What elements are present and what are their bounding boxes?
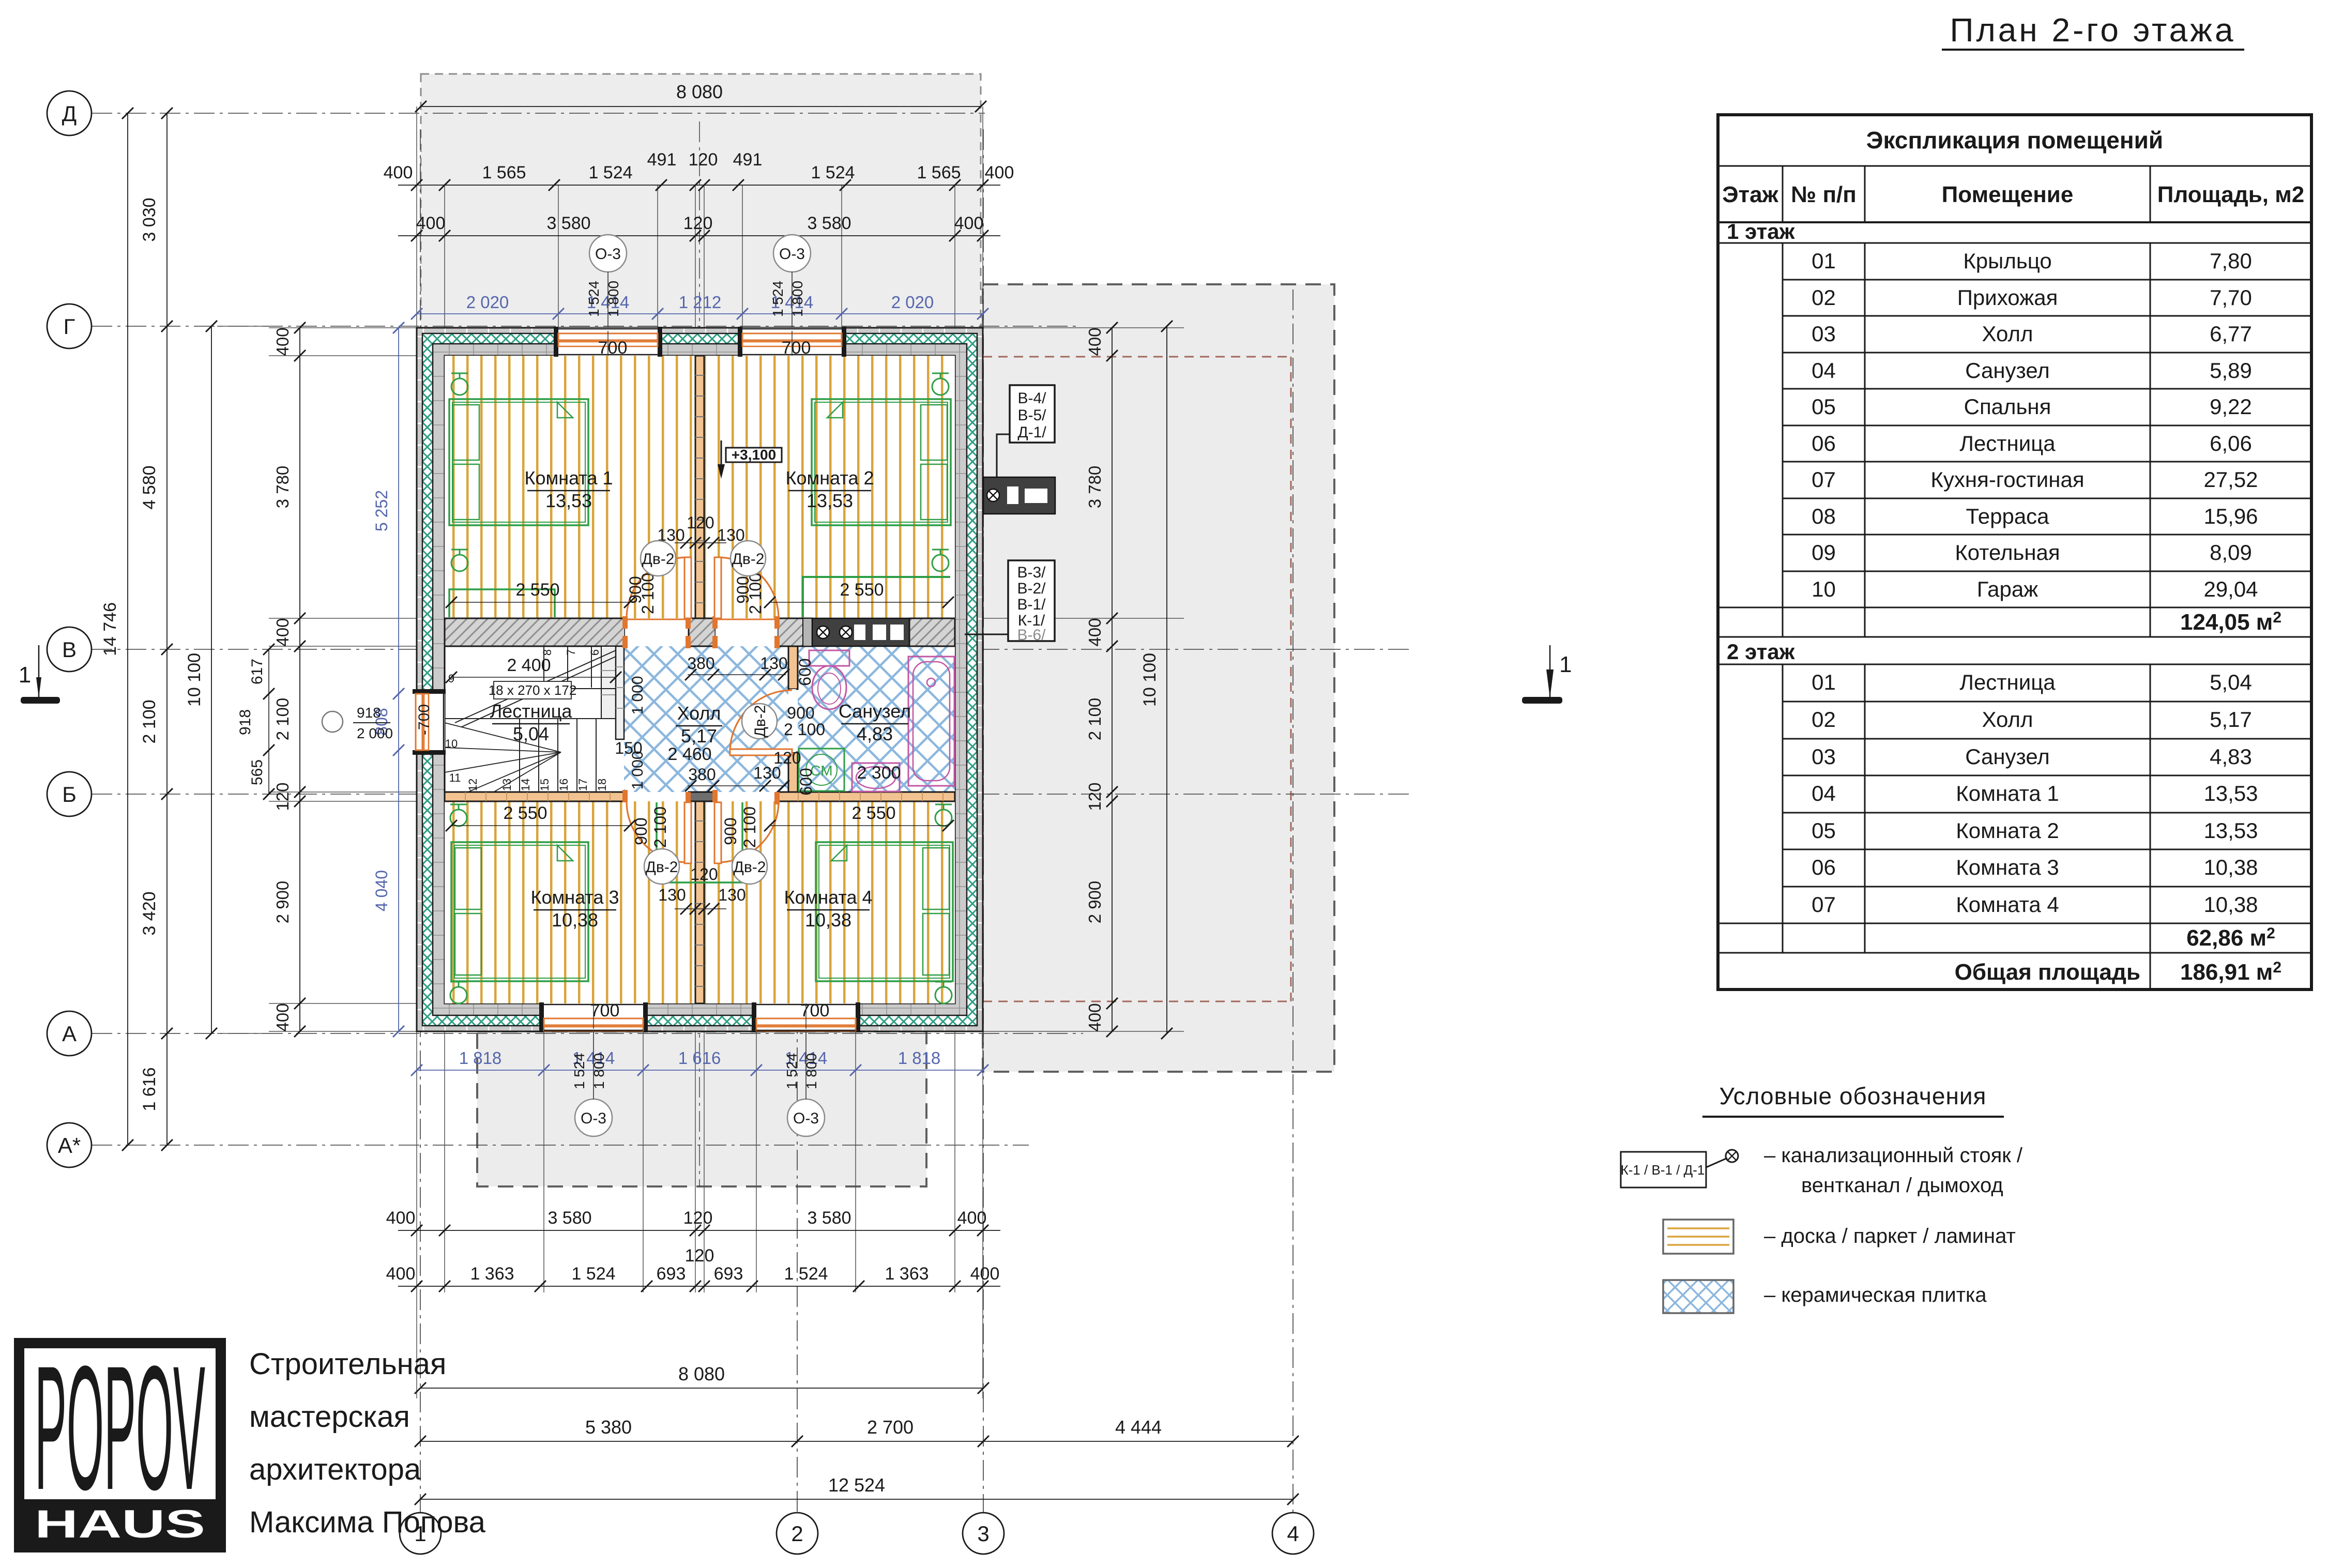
svg-text:1 000: 1 000	[629, 676, 646, 714]
svg-text:05: 05	[1812, 818, 1836, 843]
svg-text:4 580: 4 580	[140, 465, 159, 509]
svg-text:10,38: 10,38	[552, 909, 598, 931]
svg-text:400: 400	[273, 618, 292, 646]
svg-text:400: 400	[970, 1264, 1000, 1284]
svg-text:Д-1/: Д-1/	[1017, 424, 1046, 441]
svg-text:Прихожая: Прихожая	[1957, 285, 2058, 310]
svg-text:5,17: 5,17	[681, 725, 717, 747]
svg-text:4 444: 4 444	[1115, 1417, 1162, 1438]
svg-text:Санузел: Санузел	[1965, 744, 2050, 769]
svg-text:1 363: 1 363	[470, 1264, 514, 1284]
svg-text:120: 120	[683, 1208, 713, 1228]
svg-text:700: 700	[782, 338, 811, 358]
svg-text:12: 12	[466, 779, 479, 791]
svg-text:1 800: 1 800	[591, 1053, 607, 1089]
svg-text:15,96: 15,96	[2203, 504, 2258, 528]
svg-text:400: 400	[416, 214, 446, 233]
svg-text:03: 03	[1812, 322, 1836, 346]
svg-text:К-1 / В-1 / Д-1: К-1 / В-1 / Д-1	[1621, 1162, 1705, 1178]
svg-text:1 524: 1 524	[784, 1053, 800, 1089]
svg-text:18 x 270 x 172: 18 x 270 x 172	[489, 682, 577, 698]
svg-text:400: 400	[957, 1208, 987, 1228]
svg-text:А: А	[62, 1022, 77, 1046]
svg-text:2 900: 2 900	[1085, 881, 1104, 924]
svg-text:6,77: 6,77	[2210, 322, 2252, 346]
svg-text:3 580: 3 580	[807, 1208, 851, 1228]
svg-text:7: 7	[565, 649, 577, 656]
svg-text:10 100: 10 100	[1140, 653, 1160, 707]
svg-text:В-6/: В-6/	[1017, 627, 1046, 644]
svg-text:2 100: 2 100	[651, 806, 670, 848]
svg-text:Комната 4: Комната 4	[784, 887, 873, 908]
svg-text:07: 07	[1812, 467, 1836, 492]
svg-text:Комната 1: Комната 1	[1956, 781, 2059, 805]
svg-text:1 этаж: 1 этаж	[1727, 219, 1796, 243]
svg-text:400: 400	[384, 163, 413, 182]
svg-text:14 746: 14 746	[100, 602, 120, 656]
svg-text:13: 13	[500, 779, 513, 791]
svg-text:Крыльцо: Крыльцо	[1963, 249, 2051, 273]
svg-text:О-3: О-3	[793, 1110, 819, 1127]
svg-text:130: 130	[658, 886, 686, 904]
svg-text:Холл: Холл	[1982, 707, 2033, 732]
svg-text:617: 617	[249, 659, 266, 684]
svg-text:565: 565	[249, 759, 266, 785]
svg-text:01: 01	[1812, 249, 1836, 273]
svg-text:400: 400	[1085, 618, 1104, 646]
svg-text:02: 02	[1812, 707, 1836, 732]
svg-text:1 565: 1 565	[917, 163, 961, 182]
svg-text:380: 380	[687, 654, 714, 673]
svg-text:Г: Г	[64, 314, 75, 339]
svg-text:Лестница: Лестница	[1959, 431, 2056, 455]
svg-text:2 700: 2 700	[867, 1417, 914, 1438]
svg-text:Терраса: Терраса	[1966, 504, 2049, 528]
svg-text:Общая площадь: Общая площадь	[1955, 960, 2140, 985]
svg-text:3 420: 3 420	[140, 891, 159, 935]
svg-text:Экспликация помещений: Экспликация помещений	[1866, 127, 2163, 154]
svg-text:– керамическая плитка: – керамическая плитка	[1764, 1284, 1987, 1306]
svg-text:2 550: 2 550	[851, 803, 895, 823]
svg-text:12 524: 12 524	[828, 1474, 885, 1496]
svg-text:Площадь, м2: Площадь, м2	[2157, 182, 2304, 207]
svg-text:3 780: 3 780	[1085, 466, 1104, 509]
svg-text:02: 02	[1812, 285, 1836, 310]
svg-text:1 800: 1 800	[789, 281, 805, 317]
svg-text:16: 16	[557, 779, 570, 791]
svg-text:HAUS: HAUS	[35, 1502, 205, 1546]
svg-text:1 524: 1 524	[586, 281, 602, 317]
svg-text:2 900: 2 900	[273, 881, 292, 924]
svg-text:8: 8	[541, 649, 554, 656]
svg-text:120: 120	[687, 513, 714, 532]
svg-text:400: 400	[273, 1003, 292, 1031]
svg-text:120: 120	[689, 150, 718, 170]
svg-text:1 524: 1 524	[811, 163, 855, 182]
svg-text:– канализационный стояк /: – канализационный стояк /	[1764, 1144, 2023, 1167]
svg-text:4,83: 4,83	[2210, 744, 2252, 769]
svg-text:Строительная: Строительная	[249, 1347, 446, 1381]
svg-text:+3,100: +3,100	[732, 447, 776, 463]
svg-text:05: 05	[1812, 394, 1836, 419]
svg-text:120: 120	[690, 865, 718, 884]
svg-text:62,86 м2: 62,86 м2	[2186, 925, 2275, 951]
svg-text:архитектора: архитектора	[249, 1453, 421, 1486]
svg-text:1 524: 1 524	[571, 1053, 587, 1089]
svg-text:2 550: 2 550	[503, 803, 547, 823]
svg-text:13,53: 13,53	[807, 490, 853, 511]
svg-text:2 100: 2 100	[638, 573, 657, 614]
svg-text:Лестница: Лестница	[490, 701, 573, 722]
svg-text:В-2/: В-2/	[1017, 580, 1046, 597]
svg-text:5,17: 5,17	[2210, 707, 2252, 732]
svg-text:10 100: 10 100	[185, 653, 204, 707]
svg-text:5,89: 5,89	[2210, 358, 2252, 383]
svg-text:6: 6	[588, 649, 601, 656]
svg-text:1 800: 1 800	[803, 1053, 819, 1089]
svg-text:1 565: 1 565	[482, 163, 526, 182]
svg-text:900: 900	[632, 817, 650, 845]
svg-text:Лестница: Лестница	[1959, 670, 2056, 694]
svg-text:06: 06	[1812, 431, 1836, 455]
svg-text:491: 491	[647, 150, 677, 170]
svg-text:2 400: 2 400	[507, 656, 551, 675]
svg-text:10: 10	[1812, 577, 1836, 601]
svg-text:3 030: 3 030	[140, 197, 159, 241]
svg-text:2 020: 2 020	[891, 293, 934, 312]
svg-text:Максима Попова: Максима Попова	[249, 1505, 486, 1539]
svg-text:2: 2	[791, 1521, 803, 1546]
svg-text:POPOV: POPOV	[35, 1329, 205, 1526]
svg-text:400: 400	[386, 1208, 416, 1228]
svg-text:15: 15	[538, 779, 551, 791]
svg-text:О-3: О-3	[581, 1110, 606, 1127]
svg-text:400: 400	[1085, 1003, 1104, 1031]
svg-text:Кухня-гостиная: Кухня-гостиная	[1930, 467, 2084, 492]
svg-text:7,70: 7,70	[2210, 285, 2252, 310]
svg-text:700: 700	[590, 1001, 620, 1021]
svg-text:13,53: 13,53	[2203, 781, 2258, 805]
svg-text:В-3/: В-3/	[1017, 564, 1046, 581]
svg-text:Комната 2: Комната 2	[1956, 818, 2059, 843]
svg-text:400: 400	[1085, 327, 1104, 356]
svg-text:О-3: О-3	[779, 246, 805, 263]
svg-text:03: 03	[1812, 744, 1836, 769]
svg-text:693: 693	[714, 1264, 743, 1284]
svg-text:11: 11	[449, 771, 461, 784]
svg-text:Дв-2: Дв-2	[752, 705, 769, 738]
svg-text:2 100: 2 100	[746, 573, 765, 614]
svg-text:1 524: 1 524	[571, 1264, 615, 1284]
svg-text:1 363: 1 363	[885, 1264, 929, 1284]
svg-text:2 100: 2 100	[740, 806, 759, 848]
svg-text:Д: Д	[62, 101, 77, 126]
svg-text:-700: -700	[416, 704, 433, 735]
svg-text:14: 14	[519, 779, 532, 791]
svg-text:900: 900	[721, 817, 740, 845]
svg-text:О-3: О-3	[595, 246, 621, 263]
svg-text:8,09: 8,09	[2210, 540, 2252, 565]
svg-text:1 212: 1 212	[679, 293, 722, 312]
svg-text:5,04: 5,04	[2210, 670, 2252, 694]
svg-text:10,38: 10,38	[805, 909, 851, 931]
svg-text:09: 09	[1812, 540, 1836, 565]
svg-text:3 780: 3 780	[273, 466, 292, 509]
svg-text:13,53: 13,53	[2203, 818, 2258, 843]
svg-text:10,38: 10,38	[2203, 892, 2258, 917]
svg-text:Котельная: Котельная	[1955, 540, 2060, 565]
svg-text:491: 491	[733, 150, 763, 170]
svg-text:27,52: 27,52	[2203, 467, 2258, 492]
svg-text:1 524: 1 524	[784, 1264, 828, 1284]
svg-text:06: 06	[1812, 855, 1836, 879]
svg-text:2 550: 2 550	[515, 580, 559, 600]
svg-text:3 580: 3 580	[807, 214, 851, 233]
svg-text:1 616: 1 616	[140, 1067, 159, 1111]
svg-text:– доска / паркет / ламинат: – доска / паркет / ламинат	[1764, 1225, 2016, 1247]
svg-text:600: 600	[797, 768, 815, 795]
svg-text:1 524: 1 524	[588, 163, 632, 182]
svg-text:120: 120	[685, 1246, 714, 1266]
svg-text:130: 130	[760, 654, 787, 673]
svg-text:Холл: Холл	[677, 703, 721, 724]
svg-text:В: В	[62, 637, 77, 662]
svg-text:120: 120	[773, 749, 801, 767]
svg-text:1: 1	[1559, 652, 1572, 677]
svg-text:918: 918	[237, 709, 254, 735]
svg-text:400: 400	[386, 1264, 416, 1284]
svg-text:5 252: 5 252	[372, 490, 391, 531]
svg-text:Холл: Холл	[1982, 322, 2033, 346]
svg-text:Спальня: Спальня	[1964, 394, 2051, 419]
svg-text:04: 04	[1812, 781, 1836, 805]
svg-text:В-4/: В-4/	[1017, 390, 1046, 407]
svg-text:380: 380	[688, 765, 716, 784]
svg-text:130: 130	[717, 526, 744, 544]
svg-text:01: 01	[1812, 670, 1836, 694]
svg-text:400: 400	[954, 214, 984, 233]
svg-text:1 616: 1 616	[678, 1048, 721, 1068]
svg-text:400: 400	[273, 327, 292, 356]
svg-text:07: 07	[1812, 892, 1836, 917]
svg-text:600: 600	[796, 658, 814, 686]
svg-text:1: 1	[19, 662, 31, 688]
svg-text:13,53: 13,53	[545, 490, 592, 511]
svg-text:3: 3	[977, 1521, 989, 1546]
svg-text:700: 700	[800, 1001, 830, 1021]
svg-text:4 040: 4 040	[372, 870, 391, 911]
svg-text:120: 120	[1085, 782, 1104, 811]
svg-text:Комната 4: Комната 4	[1956, 892, 2059, 917]
svg-text:1 818: 1 818	[459, 1048, 502, 1068]
svg-text:8 080: 8 080	[676, 81, 723, 102]
svg-text:120: 120	[683, 214, 713, 233]
svg-text:Условные обозначения: Условные обозначения	[1720, 1083, 1987, 1109]
svg-text:17: 17	[576, 779, 589, 791]
svg-text:План 2-го этажа: План 2-го этажа	[1950, 11, 2235, 49]
svg-text:186,91 м2: 186,91 м2	[2180, 959, 2281, 985]
svg-text:2 020: 2 020	[466, 293, 509, 312]
svg-text:Комната 1: Комната 1	[525, 467, 613, 489]
svg-text:Санузел: Санузел	[839, 701, 911, 722]
svg-text:10,38: 10,38	[2203, 855, 2258, 879]
svg-text:29,04: 29,04	[2203, 577, 2258, 601]
svg-text:В-1/: В-1/	[1017, 596, 1046, 613]
svg-text:В-5/: В-5/	[1017, 407, 1046, 424]
svg-text:Комната 2: Комната 2	[786, 467, 874, 489]
svg-text:Комната 3: Комната 3	[1956, 855, 2059, 879]
svg-text:Помещение: Помещение	[1942, 182, 2074, 207]
svg-text:2 000: 2 000	[357, 725, 393, 741]
svg-text:18: 18	[596, 779, 608, 791]
svg-text:2 460: 2 460	[667, 744, 711, 764]
svg-text:№ п/п: № п/п	[1791, 182, 1857, 207]
svg-text:2 100: 2 100	[1085, 698, 1104, 741]
svg-text:8 080: 8 080	[678, 1363, 725, 1384]
svg-text:10: 10	[445, 737, 458, 750]
svg-text:1 000: 1 000	[629, 751, 646, 789]
svg-text:2 этаж: 2 этаж	[1727, 640, 1796, 664]
svg-text:1 800: 1 800	[605, 281, 621, 317]
svg-text:9,22: 9,22	[2210, 394, 2252, 419]
svg-text:400: 400	[985, 163, 1014, 182]
svg-text:120: 120	[273, 782, 292, 811]
svg-text:2 100: 2 100	[140, 699, 159, 743]
svg-text:мастерская: мастерская	[249, 1400, 410, 1434]
svg-text:7,80: 7,80	[2210, 249, 2252, 273]
svg-text:2 100: 2 100	[784, 720, 825, 739]
svg-text:4,83: 4,83	[857, 723, 893, 744]
svg-text:08: 08	[1812, 504, 1836, 528]
svg-text:Дв-2: Дв-2	[734, 859, 766, 876]
svg-text:Дв-2: Дв-2	[642, 551, 675, 568]
svg-text:Санузел: Санузел	[1965, 358, 2050, 383]
svg-text:04: 04	[1812, 358, 1836, 383]
svg-text:4: 4	[1287, 1521, 1299, 1546]
svg-text:5,04: 5,04	[513, 723, 549, 744]
svg-text:2 550: 2 550	[840, 580, 884, 600]
svg-text:Этаж: Этаж	[1722, 182, 1778, 207]
svg-text:700: 700	[598, 338, 628, 358]
svg-text:Б: Б	[62, 782, 77, 806]
svg-text:6,06: 6,06	[2210, 431, 2252, 455]
svg-text:918: 918	[357, 705, 381, 721]
svg-text:Гараж: Гараж	[1977, 577, 2038, 601]
svg-text:130: 130	[718, 886, 745, 904]
svg-text:693: 693	[657, 1264, 686, 1284]
svg-text:Дв-2: Дв-2	[646, 859, 678, 876]
svg-text:124,05 м2: 124,05 м2	[2180, 609, 2281, 635]
svg-text:вентканал / дымоход: вентканал / дымоход	[1801, 1174, 2003, 1197]
svg-text:3 580: 3 580	[547, 1208, 591, 1228]
svg-text:2 300: 2 300	[857, 763, 901, 783]
svg-text:2 100: 2 100	[273, 698, 292, 741]
svg-text:5 380: 5 380	[585, 1417, 632, 1438]
svg-text:1 818: 1 818	[898, 1048, 941, 1068]
svg-text:3 580: 3 580	[546, 214, 590, 233]
svg-text:1 524: 1 524	[770, 281, 786, 317]
svg-text:Комната 3: Комната 3	[531, 887, 619, 908]
svg-text:А*: А*	[58, 1133, 81, 1158]
svg-text:900: 900	[787, 704, 814, 722]
svg-text:Дв-2: Дв-2	[732, 551, 765, 568]
